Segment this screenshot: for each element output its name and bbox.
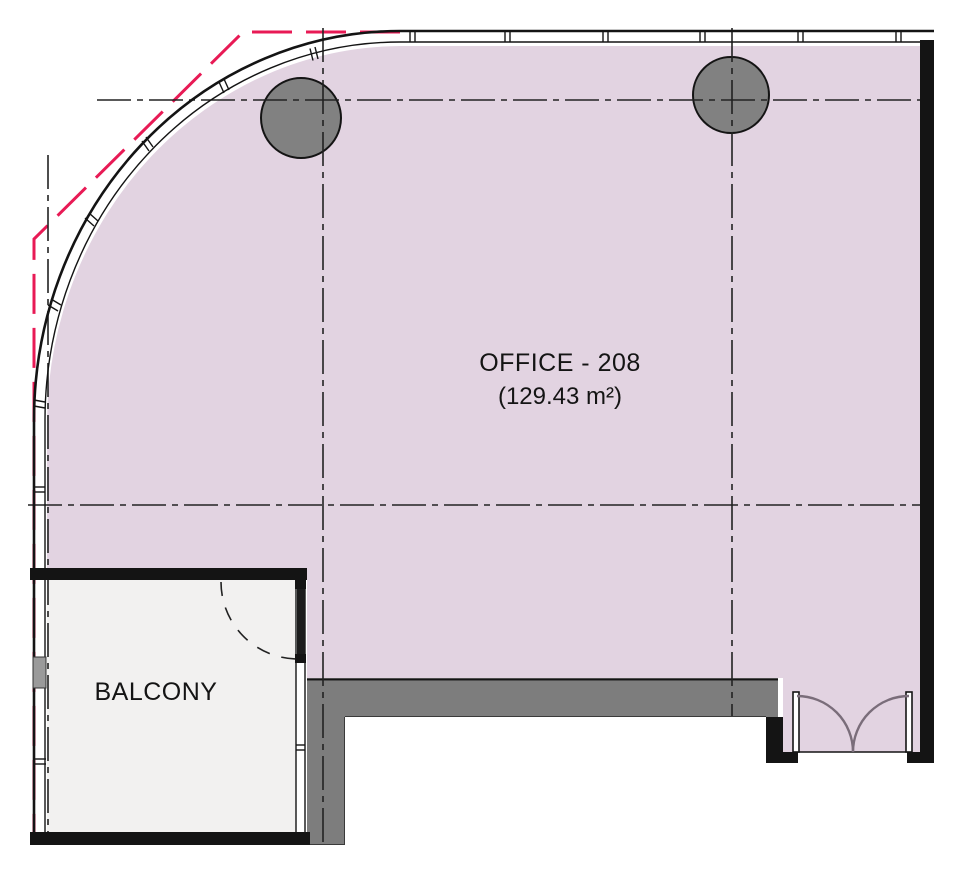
balcony-door-jamb-bottom [295,654,306,663]
stair-side-wall-slab [307,717,345,845]
south-wall-slab [307,681,778,717]
balcony-floor-area [47,580,296,832]
door-threshold-left-block [783,752,798,763]
floor-plan-drawing: OFFICE - 208 (129.43 m²) BALCONY [0,0,974,878]
office-room-label: OFFICE - 208 [479,349,641,377]
balcony-south-wall [30,832,310,845]
mullion-block [33,657,46,688]
column [693,57,769,133]
balcony-door-jamb-top [295,580,306,589]
column [261,78,341,158]
balcony-door-leaf [297,589,305,655]
office-area-label: (129.43 m²) [498,383,622,410]
balcony-north-wall [30,568,307,580]
floor-plan-canvas: OFFICE - 208 (129.43 m²) BALCONY [0,0,974,878]
east-wall [920,40,934,763]
door-threshold-right-block [907,752,921,763]
door-jamb-right [906,692,912,752]
wall-step-block [766,717,783,763]
top-wall-mullions [410,31,901,42]
door-jamb-left [793,692,799,752]
balcony-room-label: BALCONY [95,678,218,706]
